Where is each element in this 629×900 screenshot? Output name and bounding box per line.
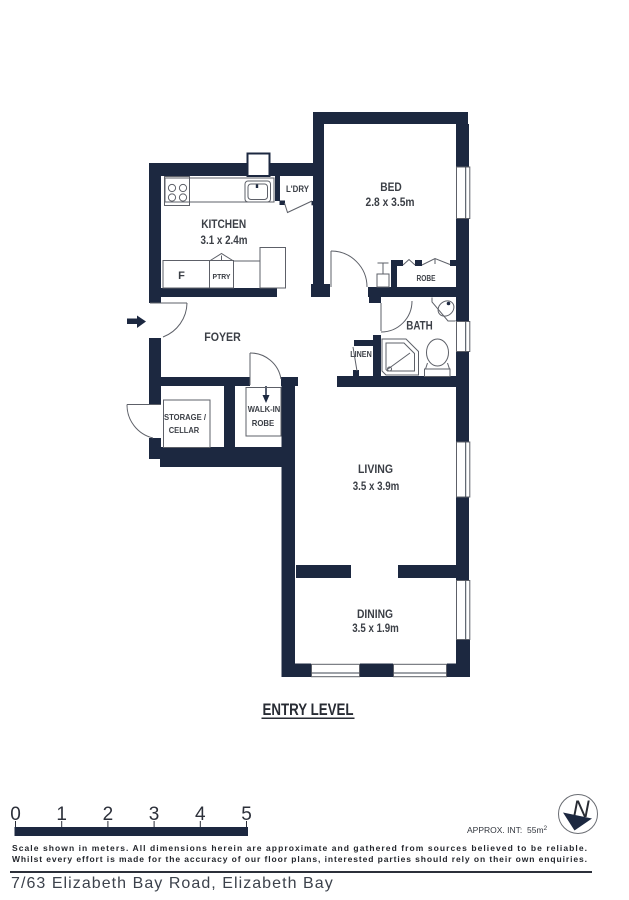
svg-text:WALK-IN: WALK-IN (248, 404, 281, 414)
svg-text:ROBE: ROBE (417, 274, 437, 283)
svg-text:STORAGE /: STORAGE / (164, 413, 207, 422)
svg-text:F: F (178, 270, 185, 282)
svg-text:DINING: DINING (357, 607, 393, 621)
svg-text:ROBE: ROBE (252, 418, 275, 428)
svg-text:BATH: BATH (406, 319, 433, 333)
svg-text:ENTRY LEVEL: ENTRY LEVEL (263, 700, 354, 719)
svg-text:Whilst every effort is made fo: Whilst every effort is made for the accu… (12, 854, 587, 864)
svg-text:LINEN: LINEN (350, 350, 372, 359)
svg-text:CELLAR: CELLAR (169, 426, 200, 435)
svg-text:L'DRY: L'DRY (286, 184, 310, 195)
svg-text:3.5 x 1.9m: 3.5 x 1.9m (352, 621, 399, 635)
svg-text:7/63 Elizabeth Bay Road, Eliza: 7/63 Elizabeth Bay Road, Elizabeth Bay (11, 875, 334, 892)
svg-text:2.8 x 3.5m: 2.8 x 3.5m (366, 195, 415, 209)
svg-text:Scale shown in meters. All dim: Scale shown in meters. All dimensions he… (12, 843, 587, 853)
svg-text:APPROX. INT: 55m2: APPROX. INT: 55m2 (467, 825, 548, 835)
svg-text:3.5 x 3.9m: 3.5 x 3.9m (353, 479, 400, 493)
svg-text:KITCHEN: KITCHEN (201, 217, 246, 231)
svg-text:LIVING: LIVING (358, 462, 393, 476)
svg-text:PTRY: PTRY (213, 272, 231, 281)
svg-text:FOYER: FOYER (204, 330, 241, 344)
svg-text:BED: BED (380, 180, 402, 194)
svg-text:3.1 x 2.4m: 3.1 x 2.4m (201, 233, 248, 247)
